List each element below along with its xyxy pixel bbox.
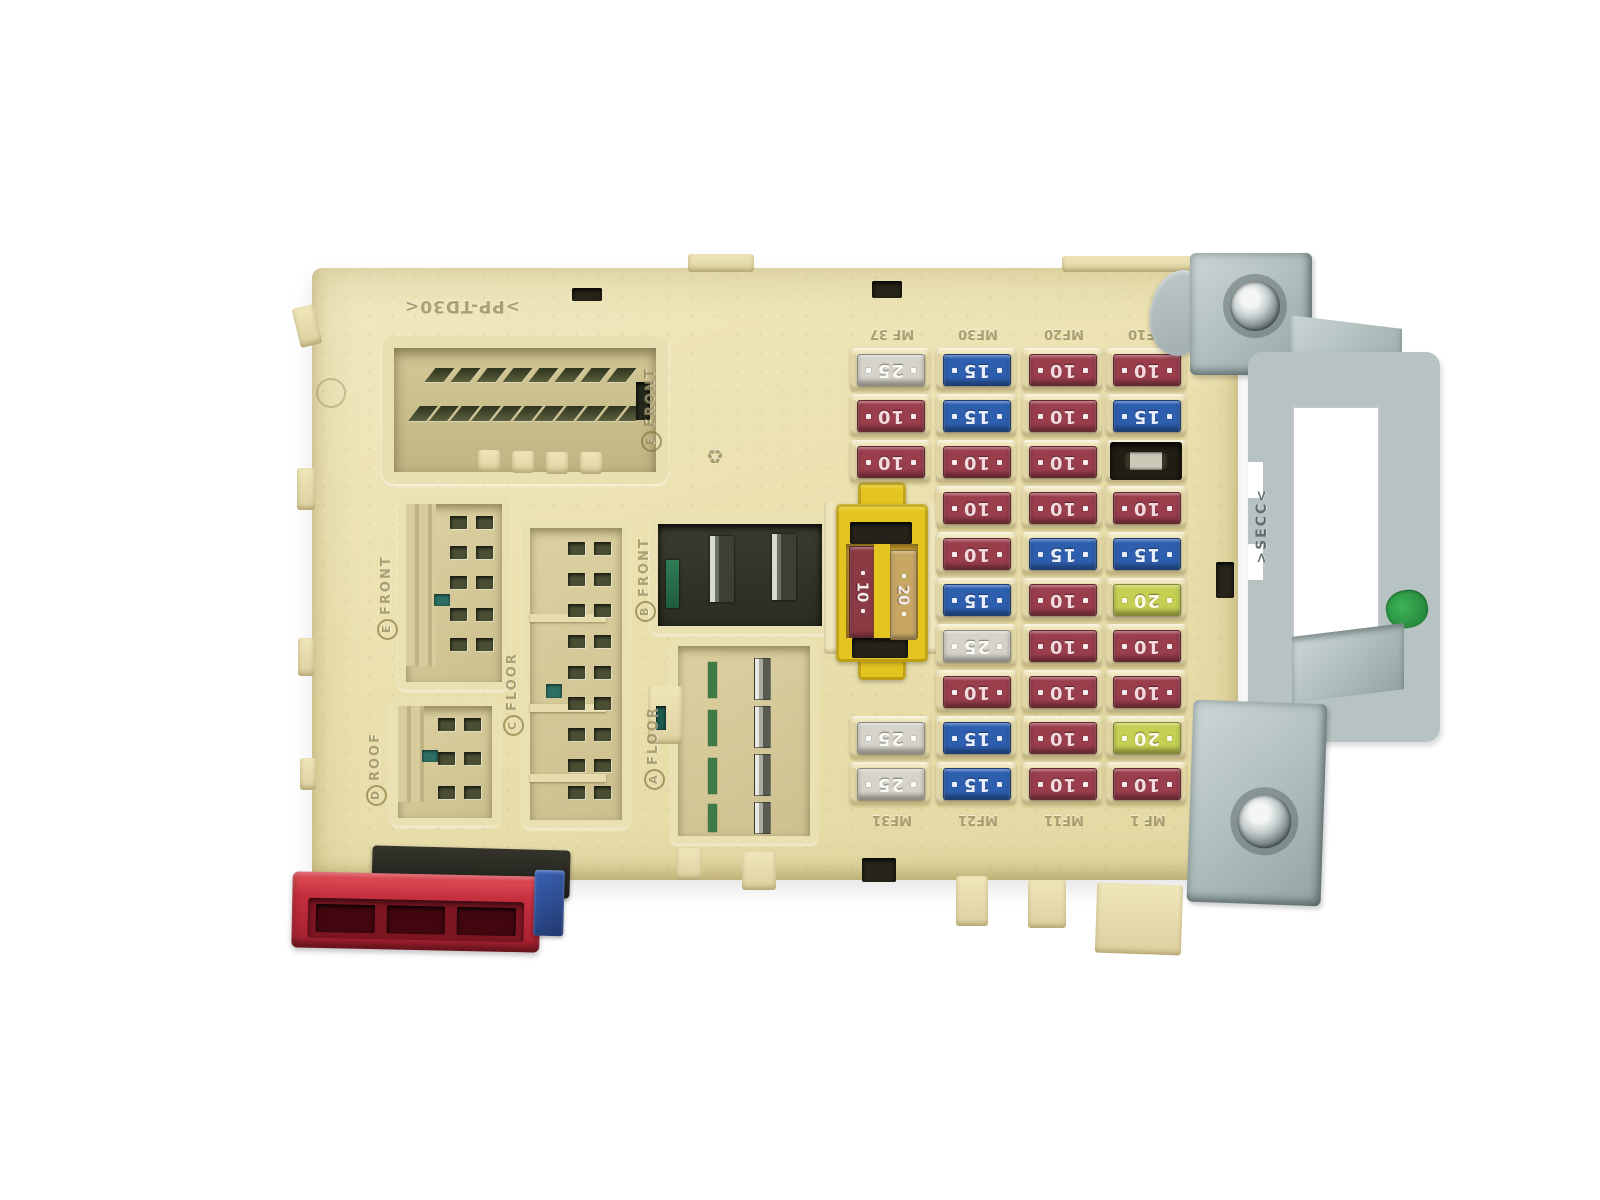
- blade-terminal: [710, 536, 734, 602]
- pin-slot: [451, 368, 481, 382]
- pin-slot: [594, 542, 611, 555]
- pin-slot: [568, 604, 585, 617]
- pin-slot: [568, 635, 585, 648]
- fuse-column-top-label: MF30: [932, 326, 1024, 341]
- fuse-body: 15: [1113, 538, 1181, 570]
- connector-cavity: [658, 524, 822, 626]
- keyed-pin: [422, 750, 438, 762]
- terminal-dot: [911, 736, 916, 741]
- terminal-dot: [1038, 598, 1043, 603]
- pin-slot: [476, 608, 493, 621]
- pin-slot: [450, 576, 467, 589]
- terminal-dot: [997, 782, 1002, 787]
- pin-slot: [476, 516, 493, 529]
- fuse-body: 10: [1113, 676, 1181, 708]
- connector-label-e: EFRONT: [377, 540, 398, 644]
- keyed-pin: [546, 684, 562, 698]
- case-tab: [297, 468, 315, 510]
- connector-ribs: [398, 706, 424, 802]
- fuse-15a: 15: [936, 394, 1016, 436]
- terminal-dot: [952, 782, 957, 787]
- terminal-dot: [952, 736, 957, 741]
- pcb-edge: [666, 560, 679, 608]
- pcb-trace: [708, 662, 717, 698]
- fuse-body: 25: [857, 354, 925, 386]
- terminal-dot: [1122, 506, 1127, 511]
- terminal-dot: [952, 690, 957, 695]
- terminal-dot: [1083, 782, 1088, 787]
- bracket-bottom-plate: [1187, 700, 1328, 907]
- fuse-cavity: [1110, 442, 1182, 480]
- red-connector-slot: [307, 898, 524, 943]
- terminal-dot: [1083, 644, 1088, 649]
- terminal-dot: [997, 552, 1002, 557]
- circle-letter: B: [635, 601, 656, 622]
- terminal-dot: [1038, 368, 1043, 373]
- fuse-10a: 10: [1106, 762, 1186, 804]
- circle-letter: C: [503, 715, 524, 736]
- fuse-column-1: 2510102525: [850, 348, 930, 810]
- pin-slot: [594, 666, 611, 679]
- fuse-body: 25: [857, 722, 925, 754]
- terminal-dot: [1083, 506, 1088, 511]
- pin-slot: [581, 368, 611, 382]
- terminal-metal: [1124, 452, 1168, 470]
- connector-b-front: [650, 516, 830, 634]
- terminal-dot: [1083, 690, 1088, 695]
- terminal-dot: [1167, 414, 1172, 419]
- case-tab: [300, 758, 316, 790]
- fuse-10a: 10: [1106, 670, 1186, 712]
- terminal-dot: [1167, 690, 1172, 695]
- terminal-dot: [1122, 782, 1127, 787]
- terminal-dot: [1038, 552, 1043, 557]
- pin-slot: [425, 368, 455, 382]
- pin-slot: [568, 759, 585, 772]
- pin-slot: [450, 608, 467, 621]
- fuse-body: 10: [1113, 630, 1181, 662]
- terminal-dot: [1083, 414, 1088, 419]
- terminal-dot: [1167, 782, 1172, 787]
- pin-slot: [438, 786, 455, 799]
- fuse-10a: 10: [850, 394, 930, 436]
- fuse-body: 10: [1113, 768, 1181, 800]
- fuse-column-4: 101510152010102010: [1106, 348, 1186, 810]
- terminal-dot: [1122, 736, 1127, 741]
- molded-circle-mark: [316, 378, 346, 408]
- fuse-10a: 10: [936, 670, 1016, 712]
- vent-hole: [572, 288, 602, 301]
- connector-label-c: CFLOOR: [503, 628, 524, 740]
- terminal-dot: [997, 506, 1002, 511]
- pin-slot: [438, 718, 455, 731]
- terminal-dot: [1038, 736, 1043, 741]
- fuse-10a: 10: [1022, 670, 1102, 712]
- terminal-dot: [1122, 690, 1127, 695]
- fuse-10a: 10: [936, 440, 1016, 482]
- pin-slot: [594, 759, 611, 772]
- fuse-15a: 15: [936, 578, 1016, 620]
- photo-canvas: >PP-TD30< ♻: [0, 0, 1600, 1200]
- terminal-dot: [1038, 414, 1043, 419]
- pin-slot: [594, 573, 611, 586]
- fuse-column-top-label: MF20: [1018, 326, 1110, 341]
- connector-d-roof: [390, 698, 500, 826]
- fuse-body: 10: [1029, 768, 1097, 800]
- pcb-trace: [708, 804, 717, 832]
- bolt-hole-bottom: [1236, 793, 1292, 849]
- pin-slot: [607, 368, 637, 382]
- connector-notch: [512, 451, 534, 473]
- blade-slot: [754, 706, 771, 748]
- bracket-stamp: >SECC<: [1254, 488, 1270, 564]
- empty-fuse-slot: [1106, 440, 1186, 482]
- vent-hole: [1216, 562, 1234, 598]
- case-tab: [688, 254, 754, 272]
- fuse-body: 20: [1113, 722, 1181, 754]
- fuse-body: 10: [1029, 492, 1097, 524]
- pin-slot: [503, 368, 533, 382]
- terminal-dot: [911, 460, 916, 465]
- case-foot: [1028, 880, 1066, 928]
- pin-slot: [594, 786, 611, 799]
- blue-connector-cap: [533, 870, 565, 937]
- blade-slot: [754, 802, 771, 834]
- fuse-body: 10: [857, 446, 925, 478]
- terminal-dot: [911, 782, 916, 787]
- pin-slot: [464, 752, 481, 765]
- pin-slot: [464, 718, 481, 731]
- fuse-10a: 10: [1022, 394, 1102, 436]
- terminal-dot: [952, 598, 957, 603]
- fuse-body: 10: [943, 676, 1011, 708]
- fuse-body: 10: [1029, 400, 1097, 432]
- fuse-10a: 10: [1022, 348, 1102, 390]
- fuse-body: 15: [1113, 400, 1181, 432]
- fuse-column-top-label: MF 37: [846, 326, 938, 341]
- pin-slot: [450, 516, 467, 529]
- pcb-trace: [708, 710, 717, 746]
- connector-label-d: DROOF: [366, 714, 387, 810]
- terminal-dot: [866, 736, 871, 741]
- fuse-25a: 25: [850, 762, 930, 804]
- fuse-10a: 10: [936, 486, 1016, 528]
- terminal-dot: [1122, 644, 1127, 649]
- fuse-body: 10: [943, 446, 1011, 478]
- pin-slot: [450, 638, 467, 651]
- fuse-body: 10: [857, 400, 925, 432]
- fuse-body: 10: [1113, 492, 1181, 524]
- terminal-dot: [997, 460, 1002, 465]
- fuse-body: 25: [857, 768, 925, 800]
- terminal-dot: [1122, 598, 1127, 603]
- fuse-body: 10: [943, 492, 1011, 524]
- keyed-pin: [434, 594, 450, 606]
- pin-slot: [568, 666, 585, 679]
- terminal-dot: [1083, 460, 1088, 465]
- blade-slot: [754, 754, 771, 796]
- fuse-body: 25: [943, 630, 1011, 662]
- terminal-dot: [1038, 644, 1043, 649]
- terminal-dot: [952, 506, 957, 511]
- pin-slot: [568, 697, 585, 710]
- fuse-body: 15: [1029, 538, 1097, 570]
- fuse-15a: 15: [936, 716, 1016, 758]
- pin-slot: [555, 368, 585, 382]
- fuse-body: 20: [1113, 584, 1181, 616]
- vent-hole: [872, 281, 902, 298]
- terminal-dot: [1122, 414, 1127, 419]
- terminal-dot: [1167, 598, 1172, 603]
- pin-slot: [476, 576, 493, 589]
- pin-slot: [568, 728, 585, 741]
- fuse-body: 10: [1029, 446, 1097, 478]
- terminal-dot: [1083, 552, 1088, 557]
- terminal-dot: [866, 368, 871, 373]
- connector-label-a: AFLOOR: [644, 690, 665, 794]
- fuse-column-3: 10101010151010101010: [1022, 348, 1102, 810]
- molded-part-number: >PP-TD30<: [404, 296, 520, 316]
- fuse-column-bottom-label: MF21: [932, 812, 1024, 827]
- terminal-dot: [1083, 368, 1088, 373]
- circle-letter: D: [366, 785, 387, 806]
- fuse-body: 15: [943, 584, 1011, 616]
- pin-slot: [477, 368, 507, 382]
- terminal-dot: [866, 414, 871, 419]
- blade-terminal: [772, 534, 796, 600]
- fuse-body: 10: [1029, 676, 1097, 708]
- fuse-10a: 10: [1022, 716, 1102, 758]
- terminal-dot: [952, 644, 957, 649]
- fuse-column-bottom-label: MF31: [846, 812, 938, 827]
- pin-slot: [476, 546, 493, 559]
- connector-a-floor: [670, 638, 818, 844]
- terminal-dot: [866, 782, 871, 787]
- fuse-15a: 15: [1106, 532, 1186, 574]
- connector-c-floor: [522, 520, 630, 828]
- slot-window: [386, 905, 445, 934]
- fuse-25a: 25: [850, 716, 930, 758]
- fuse-body: 10: [943, 538, 1011, 570]
- connector-e-front: [398, 496, 510, 690]
- pin-slot: [594, 604, 611, 617]
- fuse-10a: 10: [1106, 624, 1186, 666]
- red-connector: [291, 871, 541, 952]
- terminal-dot: [1083, 736, 1088, 741]
- fuse-body: 10: [1029, 584, 1097, 616]
- pin-slot: [438, 752, 455, 765]
- connector-notch: [478, 450, 500, 472]
- connector-label-b: BFRONT: [635, 534, 656, 626]
- terminal-dot: [997, 690, 1002, 695]
- fuse-body: 10: [1029, 354, 1097, 386]
- terminal-dot: [1167, 644, 1172, 649]
- circle-letter: E: [377, 619, 398, 640]
- terminal-dot: [952, 460, 957, 465]
- pin-slot: [568, 573, 585, 586]
- fuse-20a: 20: [1106, 716, 1186, 758]
- pin-slot: [450, 546, 467, 559]
- fuse-10a: 10: [1022, 486, 1102, 528]
- slot-window: [316, 904, 375, 933]
- fuse-15a: 15: [1022, 532, 1102, 574]
- connector-notch: [580, 452, 602, 474]
- terminal-dot: [1083, 598, 1088, 603]
- pin-slot: [529, 368, 559, 382]
- fuse-10a: 10: [1022, 578, 1102, 620]
- terminal-dot: [1038, 690, 1043, 695]
- pin-slot: [568, 786, 585, 799]
- terminal-dot: [1122, 368, 1127, 373]
- fuse-body: 15: [943, 768, 1011, 800]
- pin-slot: [594, 728, 611, 741]
- terminal-dot: [952, 414, 957, 419]
- pcb-trace: [708, 758, 717, 794]
- fuse-10a: 10: [936, 532, 1016, 574]
- terminal-dot: [1038, 782, 1043, 787]
- fuse-body: 15: [943, 354, 1011, 386]
- fuse-column-bottom-label: MF 1: [1102, 812, 1194, 827]
- terminal-dot: [911, 414, 916, 419]
- connector-ribs: [406, 504, 436, 666]
- case-foot: [676, 848, 702, 880]
- fuse-10a: 10: [1022, 762, 1102, 804]
- fuse-10a: 10: [850, 440, 930, 482]
- connector-shelf: [530, 774, 606, 782]
- connector-notch: [546, 452, 568, 474]
- terminal-dot: [997, 598, 1002, 603]
- fuse-20a: 20: [1106, 578, 1186, 620]
- case-foot: [956, 876, 988, 926]
- terminal-dot: [1122, 552, 1127, 557]
- fuse-column-bottom-label: MF11: [1018, 812, 1110, 827]
- fuse-body: 15: [943, 400, 1011, 432]
- fuse-10a: 10: [1022, 440, 1102, 482]
- fuse-15a: 15: [936, 348, 1016, 390]
- case-tab: [298, 638, 314, 676]
- blade-slot: [754, 658, 771, 700]
- terminal-dot: [952, 368, 957, 373]
- fuse-10a: 10: [1022, 624, 1102, 666]
- terminal-dot: [1167, 506, 1172, 511]
- fuse-body: 10: [1029, 722, 1097, 754]
- terminal-dot: [997, 644, 1002, 649]
- connector-label-f: FFRONT: [641, 352, 662, 456]
- terminal-dot: [911, 368, 916, 373]
- terminal-dot: [1038, 506, 1043, 511]
- bracket-link: [1292, 623, 1404, 703]
- fuse-25a: 25: [936, 624, 1016, 666]
- fuse-25a: 25: [850, 348, 930, 390]
- vent-hole: [862, 858, 896, 882]
- fuse-column-2: 15151010101525101515: [936, 348, 1016, 810]
- case-foot: [742, 852, 776, 890]
- case-foot: [1095, 883, 1183, 956]
- terminal-dot: [1038, 460, 1043, 465]
- pin-slot: [476, 638, 493, 651]
- terminal-dot: [997, 368, 1002, 373]
- terminal-dot: [1167, 552, 1172, 557]
- bolt-hole-top: [1230, 281, 1280, 331]
- terminal-dot: [952, 552, 957, 557]
- recycle-icon: ♻: [706, 444, 724, 468]
- slot-window: [457, 907, 516, 936]
- fuse-body: 10: [1113, 354, 1181, 386]
- fuse-body: 10: [1029, 630, 1097, 662]
- pin-slot: [594, 697, 611, 710]
- circle-letter: F: [641, 431, 662, 452]
- fuse-15a: 15: [1106, 394, 1186, 436]
- terminal-dot: [866, 460, 871, 465]
- circle-letter: A: [644, 769, 665, 790]
- pin-slot: [594, 635, 611, 648]
- pin-slot: [464, 786, 481, 799]
- fuse-body: 15: [943, 722, 1011, 754]
- terminal-dot: [1167, 368, 1172, 373]
- terminal-dot: [1167, 736, 1172, 741]
- pin-slot: [568, 542, 585, 555]
- terminal-dot: [997, 414, 1002, 419]
- fuse-10a: 10: [1106, 486, 1186, 528]
- fuse-15a: 15: [936, 762, 1016, 804]
- terminal-dot: [997, 736, 1002, 741]
